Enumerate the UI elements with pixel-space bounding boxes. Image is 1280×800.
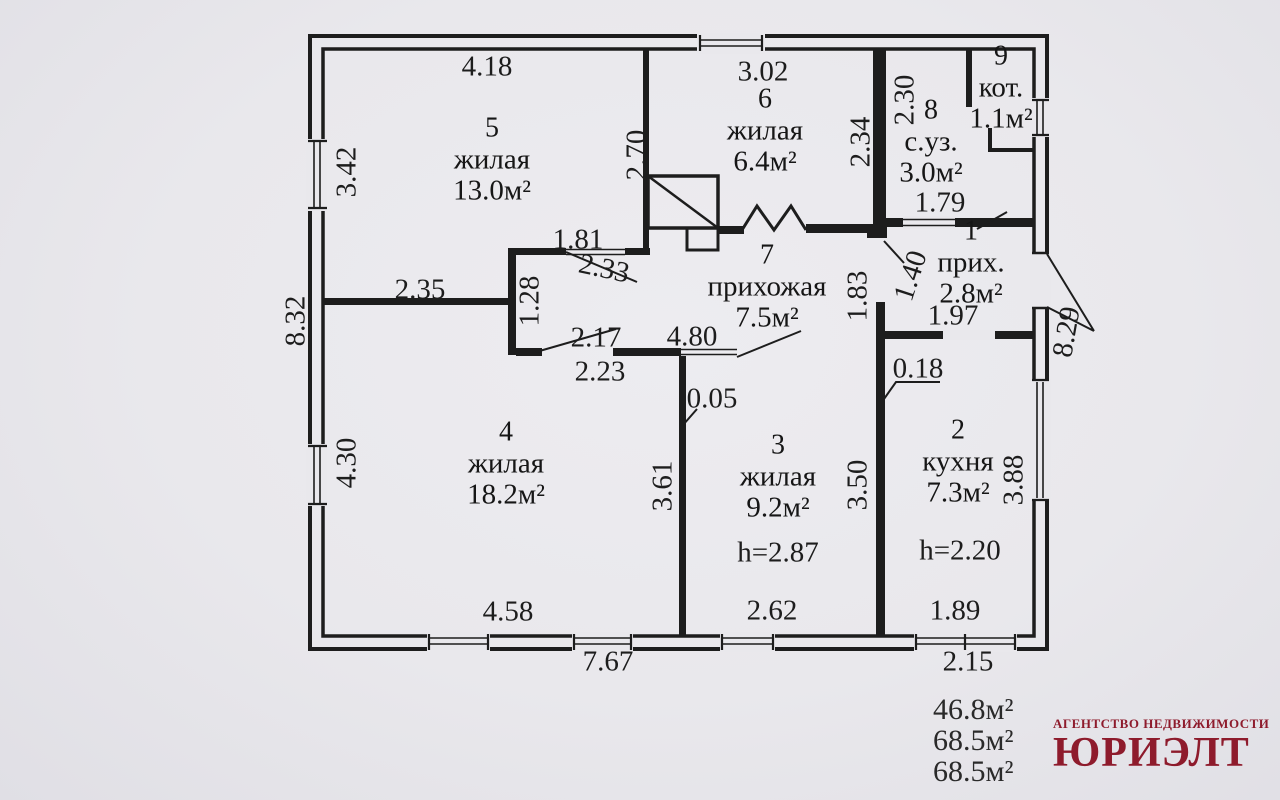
agency-logo: АГЕНТСТВО НЕДВИЖИМОСТИ ЮРИЭЛТ: [1053, 716, 1243, 774]
dim-2-17: 2.17: [571, 324, 622, 353]
dim-1-83: 1.83: [844, 271, 873, 322]
room-label-4: 4 жилая 18.2м²: [467, 419, 545, 510]
ceiling-height-room-2: h=2.20: [919, 535, 1001, 568]
room-label-1: 1 прих. 2.8м²: [937, 218, 1004, 309]
dim-3-88: 3.88: [1000, 455, 1029, 506]
dim-1-89: 1.89: [930, 597, 981, 626]
dim-4-30: 4.30: [333, 438, 362, 489]
dim-1-79: 1.79: [915, 189, 966, 218]
room-label-7: 7 прихожая 7.5м²: [708, 242, 827, 333]
overall-area: 68.5м²: [933, 756, 1013, 787]
dim-0-18: 0.18: [893, 355, 944, 384]
living-area-total: 46.8м²: [933, 694, 1013, 725]
area-totals: 46.8м² 68.5м² 68.5м²: [933, 694, 1013, 788]
dim-2-15: 2.15: [943, 648, 994, 677]
dim-2-23: 2.23: [575, 358, 626, 387]
agency-name: ЮРИЭЛТ: [1053, 732, 1243, 774]
dim-2-34: 2.34: [847, 117, 876, 168]
floorplan-photo: 4.18 3.02 2.30 1.79 3.42 2.70 2.34 1.81 …: [0, 0, 1280, 800]
dim-2-62: 2.62: [747, 597, 798, 626]
dim-1-28: 1.28: [516, 276, 545, 327]
dim-2-70: 2.70: [623, 130, 652, 181]
room-label-2: 2 кухня 7.3м²: [922, 417, 994, 508]
dim-2-35: 2.35: [395, 276, 446, 305]
floorplan-walls: [0, 0, 1280, 800]
dim-3-61: 3.61: [649, 461, 678, 512]
total-area: 68.5м²: [933, 725, 1013, 756]
dim-0-05: 0.05: [687, 385, 738, 414]
dim-8-32: 8.32: [282, 296, 311, 347]
dim-4-18: 4.18: [462, 53, 513, 82]
room-label-3: 3 жилая 9.2м²: [740, 432, 816, 523]
dim-4-58: 4.58: [483, 598, 534, 627]
room-label-5: 5 жилая 13.0м²: [453, 115, 531, 206]
dim-7-67: 7.67: [583, 648, 634, 677]
dim-3-50: 3.50: [844, 460, 873, 511]
room-label-9: 9 кот. 1.1м²: [969, 43, 1032, 134]
dim-3-42: 3.42: [333, 147, 362, 198]
dim-3-02: 3.02: [738, 58, 789, 87]
ceiling-height-room-3: h=2.87: [737, 537, 819, 570]
room-label-6: 6 жилая 6.4м²: [727, 86, 803, 177]
room-label-8: 8 с.уз. 3.0м²: [899, 97, 962, 188]
